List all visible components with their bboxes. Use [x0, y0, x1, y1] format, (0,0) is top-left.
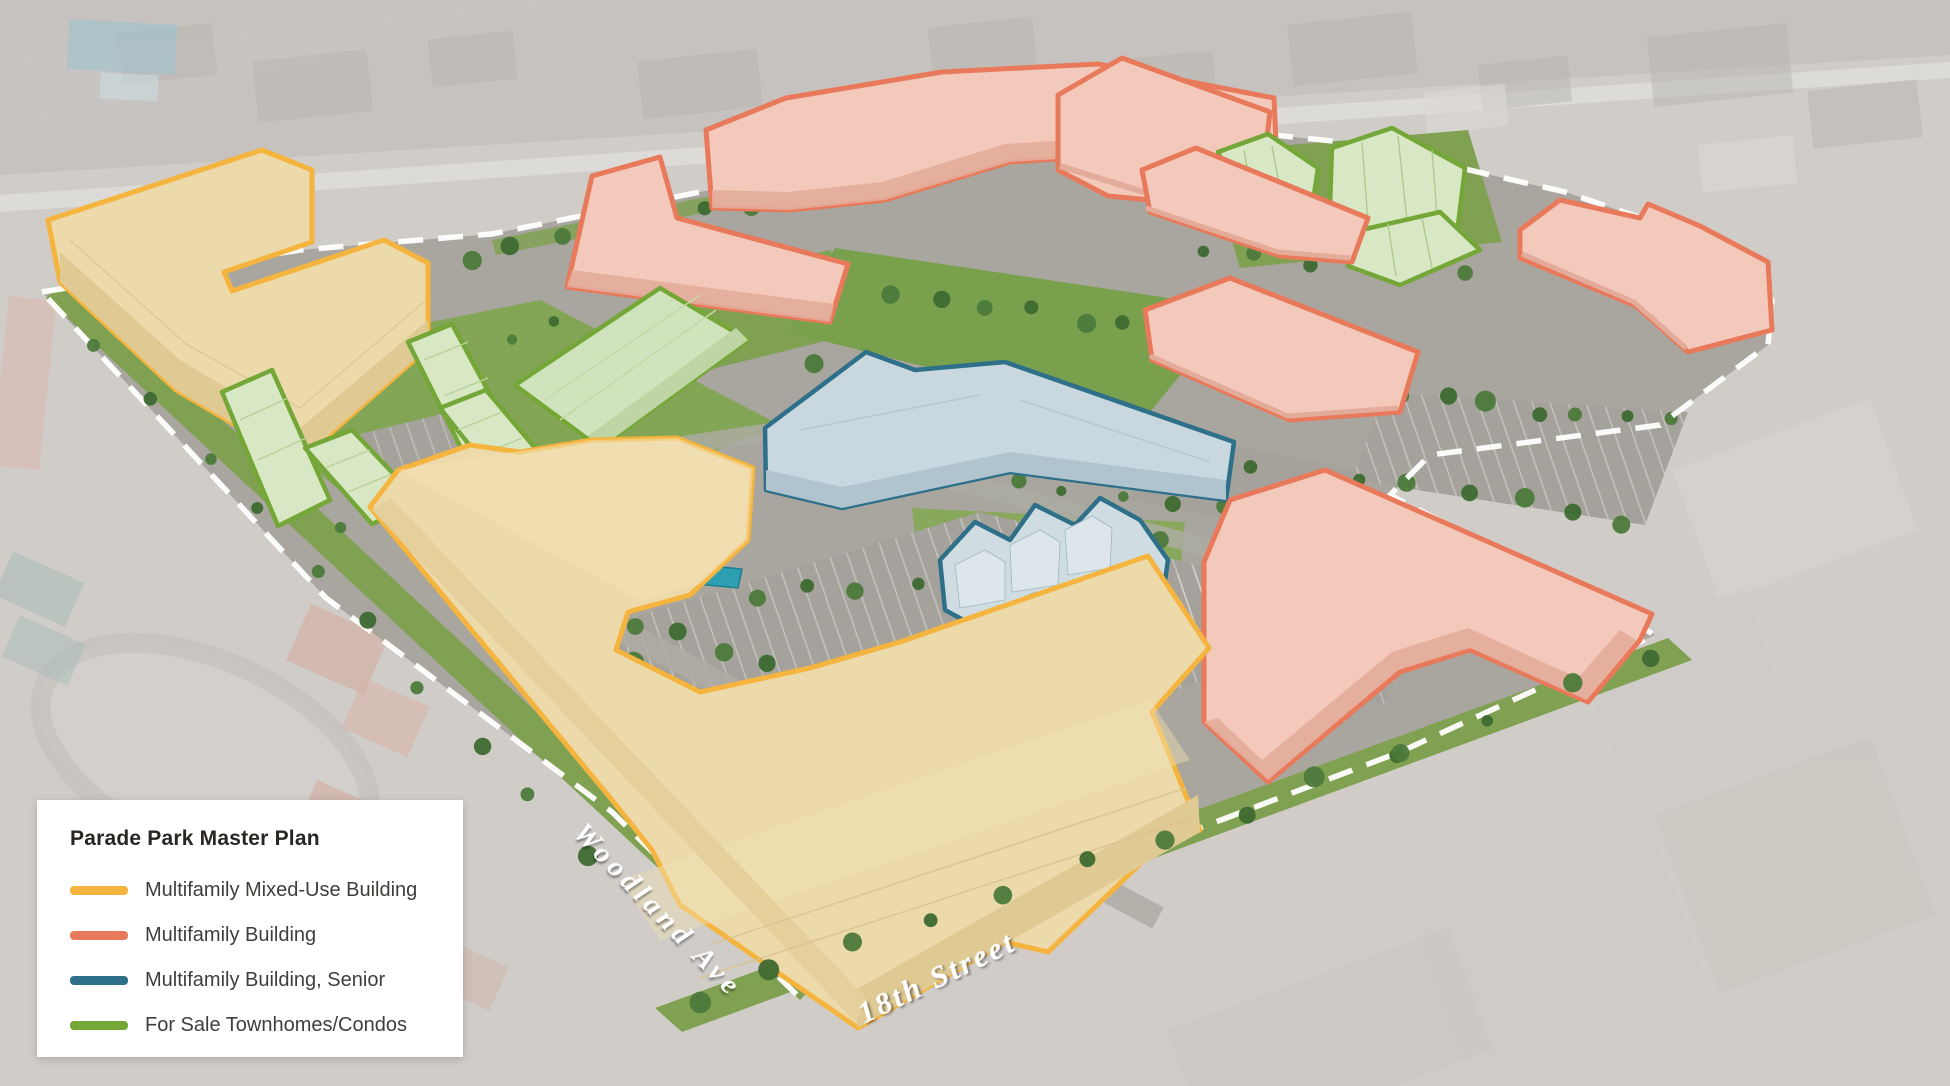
legend-item-mixed-use: Multifamily Mixed-Use Building: [70, 868, 443, 913]
legend-label-mixed-use: Multifamily Mixed-Use Building: [145, 879, 417, 902]
legend-swatch-townhomes: [70, 1021, 128, 1030]
legend: Parade Park Master Plan Multifamily Mixe…: [37, 800, 463, 1057]
legend-label-townhomes: For Sale Townhomes/Condos: [145, 1014, 407, 1037]
legend-item-townhomes: For Sale Townhomes/Condos: [70, 1003, 443, 1048]
legend-swatch-senior: [70, 976, 128, 985]
legend-item-senior: Multifamily Building, Senior: [70, 958, 443, 1003]
legend-swatch-multifamily: [70, 931, 128, 940]
legend-item-multifamily: Multifamily Building: [70, 913, 443, 958]
legend-title: Parade Park Master Plan: [70, 827, 443, 851]
legend-label-senior: Multifamily Building, Senior: [145, 969, 385, 992]
legend-swatch-mixed-use: [70, 886, 128, 895]
legend-label-multifamily: Multifamily Building: [145, 924, 316, 947]
